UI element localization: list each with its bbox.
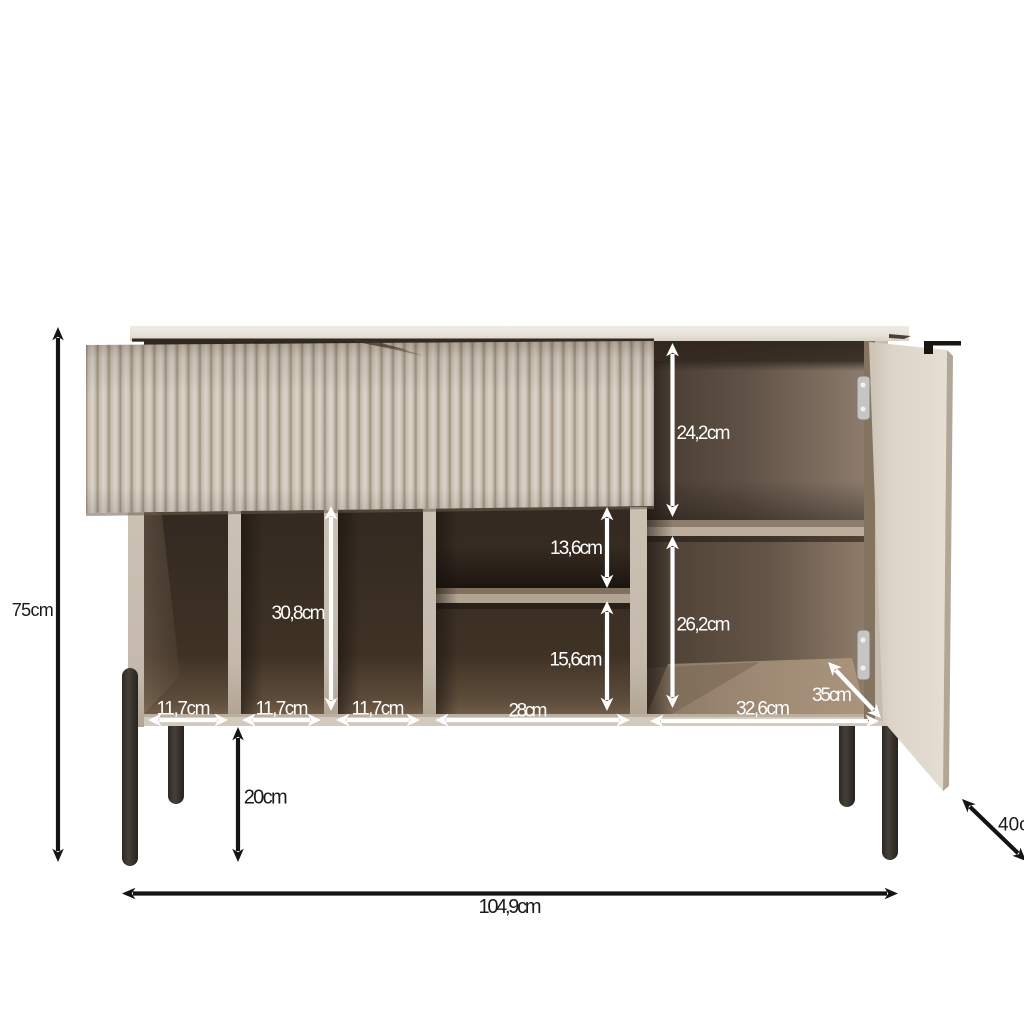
svg-text:28cm: 28cm [509,701,548,722]
svg-text:11,7cm: 11,7cm [157,699,211,720]
svg-text:40cm: 40cm [998,815,1024,836]
svg-text:30,8cm: 30,8cm [272,603,326,624]
svg-text:13,6cm: 13,6cm [550,538,603,559]
svg-text:11,7cm: 11,7cm [256,699,309,720]
svg-text:24,2cm: 24,2cm [677,423,731,444]
svg-text:35cm: 35cm [812,685,852,706]
svg-text:75cm: 75cm [12,600,54,620]
svg-text:15,6cm: 15,6cm [550,650,603,671]
svg-text:11,7cm: 11,7cm [352,699,405,720]
svg-text:26,2cm: 26,2cm [677,615,731,636]
svg-text:20cm: 20cm [244,787,288,809]
svg-text:104,9cm: 104,9cm [479,896,542,918]
svg-text:32,6cm: 32,6cm [736,699,790,720]
